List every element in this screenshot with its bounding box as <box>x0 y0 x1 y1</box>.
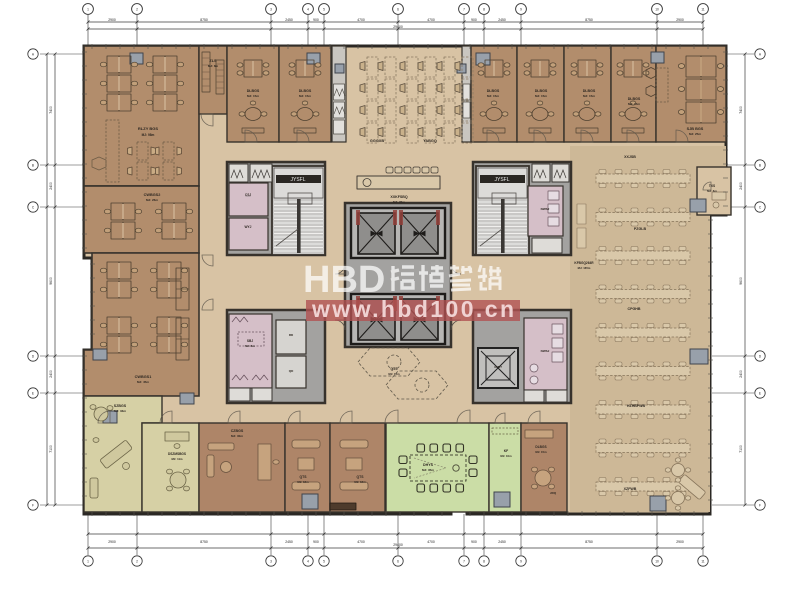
svg-text:QTS: QTS <box>357 475 365 479</box>
svg-text:2900: 2900 <box>676 540 684 544</box>
svg-text:1: 1 <box>87 8 89 12</box>
svg-text:CZBGS: CZBGS <box>231 429 244 433</box>
svg-text:MJ: 11m: MJ: 11m <box>171 457 183 461</box>
svg-text:MJ: 15m: MJ: 15m <box>299 94 311 98</box>
svg-text:NWSJ: NWSJ <box>541 349 550 353</box>
svg-text:MJ: 33m: MJ: 33m <box>114 409 126 413</box>
svg-text:QTS: QTS <box>300 475 308 479</box>
svg-text:9600: 9600 <box>49 277 53 285</box>
svg-text:7400: 7400 <box>49 106 53 114</box>
svg-text:2400: 2400 <box>739 182 743 190</box>
svg-text:DLBGS: DLBGS <box>535 89 548 93</box>
svg-text:11: 11 <box>701 560 705 564</box>
svg-text:10: 10 <box>655 8 659 12</box>
svg-text:9600: 9600 <box>739 277 743 285</box>
svg-text:2: 2 <box>136 8 138 12</box>
svg-text:4700: 4700 <box>427 18 435 22</box>
svg-text:SZBGS: SZBGS <box>114 404 127 408</box>
svg-text:MJ: 35m: MJ: 35m <box>422 468 434 472</box>
svg-text:MJ: 8m: MJ: 8m <box>208 64 219 68</box>
svg-text:MJ: 8m: MJ: 8m <box>245 344 255 348</box>
svg-text:MJ: 25m: MJ: 25m <box>689 132 701 136</box>
svg-text:XXKFSBQ: XXKFSBQ <box>390 195 408 199</box>
svg-text:MJ: 45m: MJ: 45m <box>137 380 149 384</box>
svg-text:B: B <box>32 164 34 168</box>
svg-text:DLBGS: DLBGS <box>247 89 260 93</box>
svg-text:2400: 2400 <box>739 370 743 378</box>
svg-text:KF: KF <box>504 449 509 453</box>
svg-text:MJ: 15m: MJ: 15m <box>535 450 547 454</box>
svg-text:GGGXB: GGGXB <box>370 139 384 143</box>
svg-text:MJ: 26m: MJ: 26m <box>146 198 158 202</box>
svg-text:8750: 8750 <box>585 18 593 22</box>
svg-text:6: 6 <box>397 8 399 12</box>
svg-text:CPGHB: CPGHB <box>628 307 641 311</box>
svg-text:8: 8 <box>483 560 485 564</box>
svg-text:7400: 7400 <box>739 106 743 114</box>
svg-text:2450: 2450 <box>498 540 506 544</box>
svg-text:WYJ: WYJ <box>245 225 252 229</box>
svg-text:DSZMSBGS: DSZMSBGS <box>168 452 186 456</box>
svg-text:2: 2 <box>136 560 138 564</box>
svg-text:2900: 2900 <box>676 18 684 22</box>
svg-text:DLBGS: DLBGS <box>583 89 596 93</box>
svg-text:KFBGQ264R: KFBGQ264R <box>574 261 594 265</box>
svg-text:MJ: 15m: MJ: 15m <box>535 94 547 98</box>
svg-text:2450: 2450 <box>498 18 506 22</box>
svg-text:4700: 4700 <box>357 18 365 22</box>
svg-text:1: 1 <box>87 560 89 564</box>
svg-text:ZLS: ZLS <box>209 59 217 63</box>
svg-text:MJ: 15m: MJ: 15m <box>583 94 595 98</box>
svg-text:MJ: 15m: MJ: 15m <box>388 372 400 376</box>
svg-text:DLBGS: DLBGS <box>628 97 641 101</box>
svg-text:DHYS: DHYS <box>423 463 434 467</box>
svg-text:SJB BGS: SJB BGS <box>687 127 704 131</box>
svg-text:MJ: 35m: MJ: 35m <box>393 200 405 204</box>
svg-text:F: F <box>32 504 34 508</box>
svg-text:7100: 7100 <box>739 445 743 453</box>
svg-text:29400: 29400 <box>393 25 403 29</box>
svg-text:900: 900 <box>471 540 477 544</box>
svg-text:8750: 8750 <box>585 540 593 544</box>
svg-text:TXS: TXS <box>709 184 715 188</box>
svg-text:900: 900 <box>471 18 477 22</box>
svg-text:MJ: 6m: MJ: 6m <box>707 189 717 193</box>
svg-text:2900: 2900 <box>108 540 116 544</box>
svg-text:JYSFL: JYSFL <box>290 177 305 183</box>
svg-text:XFDT: XFDT <box>494 365 502 369</box>
svg-text:JYSFL: JYSFL <box>494 177 509 183</box>
svg-text:9: 9 <box>520 560 522 564</box>
svg-text:4: 4 <box>307 8 309 12</box>
svg-text:B: B <box>759 164 761 168</box>
svg-text:9: 9 <box>520 8 522 12</box>
svg-text:MJ: 15m: MJ: 15m <box>487 94 499 98</box>
svg-text:900: 900 <box>313 540 319 544</box>
svg-text:7: 7 <box>463 8 465 12</box>
svg-text:SBJ: SBJ <box>247 339 253 343</box>
svg-text:7100: 7100 <box>49 445 53 453</box>
svg-text:MJ: 15m: MJ: 15m <box>628 102 640 106</box>
svg-text:NWSJ: NWSJ <box>541 207 550 211</box>
svg-text:PZGLB: PZGLB <box>634 227 647 231</box>
svg-text:JDQ: JDQ <box>550 491 557 495</box>
svg-text:MJ: 98m: MJ: 98m <box>142 133 155 137</box>
svg-text:MJ: 15m: MJ: 15m <box>247 94 259 98</box>
svg-text:MJ: 165m: MJ: 165m <box>578 266 591 270</box>
svg-text:QTS: QTS <box>391 367 399 371</box>
svg-text:8: 8 <box>483 8 485 12</box>
svg-text:8750: 8750 <box>200 540 208 544</box>
svg-text:XZFWB: XZFWB <box>624 487 637 491</box>
svg-text:2400: 2400 <box>49 182 53 190</box>
svg-text:6: 6 <box>397 560 399 564</box>
svg-text:4700: 4700 <box>427 540 435 544</box>
svg-text:E: E <box>32 392 34 396</box>
svg-text:2400: 2400 <box>49 370 53 378</box>
svg-text:YABGQ: YABGQ <box>423 139 437 143</box>
svg-text:2450: 2450 <box>285 540 293 544</box>
svg-text:MJ: 18m: MJ: 18m <box>297 480 309 484</box>
svg-text:3: 3 <box>270 8 272 12</box>
svg-text:MJ: 10m: MJ: 10m <box>500 454 512 458</box>
svg-text:4: 4 <box>307 560 309 564</box>
svg-text:CWBGS2: CWBGS2 <box>144 193 161 197</box>
svg-text:DLBGS: DLBGS <box>299 89 312 93</box>
svg-text:3: 3 <box>270 560 272 564</box>
svg-text:MJ: 30m: MJ: 30m <box>231 434 243 438</box>
svg-text:CWBGS1: CWBGS1 <box>135 375 152 379</box>
svg-text:HBD: HBD <box>303 259 385 301</box>
svg-text:29400: 29400 <box>393 543 403 547</box>
svg-text:HZHBFWB: HZHBFWB <box>627 404 646 408</box>
svg-text:2900: 2900 <box>108 18 116 22</box>
svg-text:2450: 2450 <box>285 18 293 22</box>
svg-text:CSJ: CSJ <box>245 193 251 197</box>
svg-text:DLBGS: DLBGS <box>535 445 546 449</box>
svg-text:E: E <box>759 392 761 396</box>
svg-text:8750: 8750 <box>200 18 208 22</box>
svg-text:F: F <box>759 504 761 508</box>
svg-text:DLBGS: DLBGS <box>487 89 500 93</box>
svg-text:11: 11 <box>701 8 705 12</box>
svg-text:7: 7 <box>463 560 465 564</box>
svg-text:5: 5 <box>323 8 325 12</box>
svg-text:XXJSB: XXJSB <box>624 155 636 159</box>
svg-text:900: 900 <box>313 18 319 22</box>
svg-text:MJ: 18m: MJ: 18m <box>354 480 366 484</box>
svg-text:10: 10 <box>655 560 659 564</box>
svg-text:5: 5 <box>323 560 325 564</box>
svg-text:4700: 4700 <box>357 540 365 544</box>
svg-text:RLZY BGS: RLZY BGS <box>138 126 158 131</box>
